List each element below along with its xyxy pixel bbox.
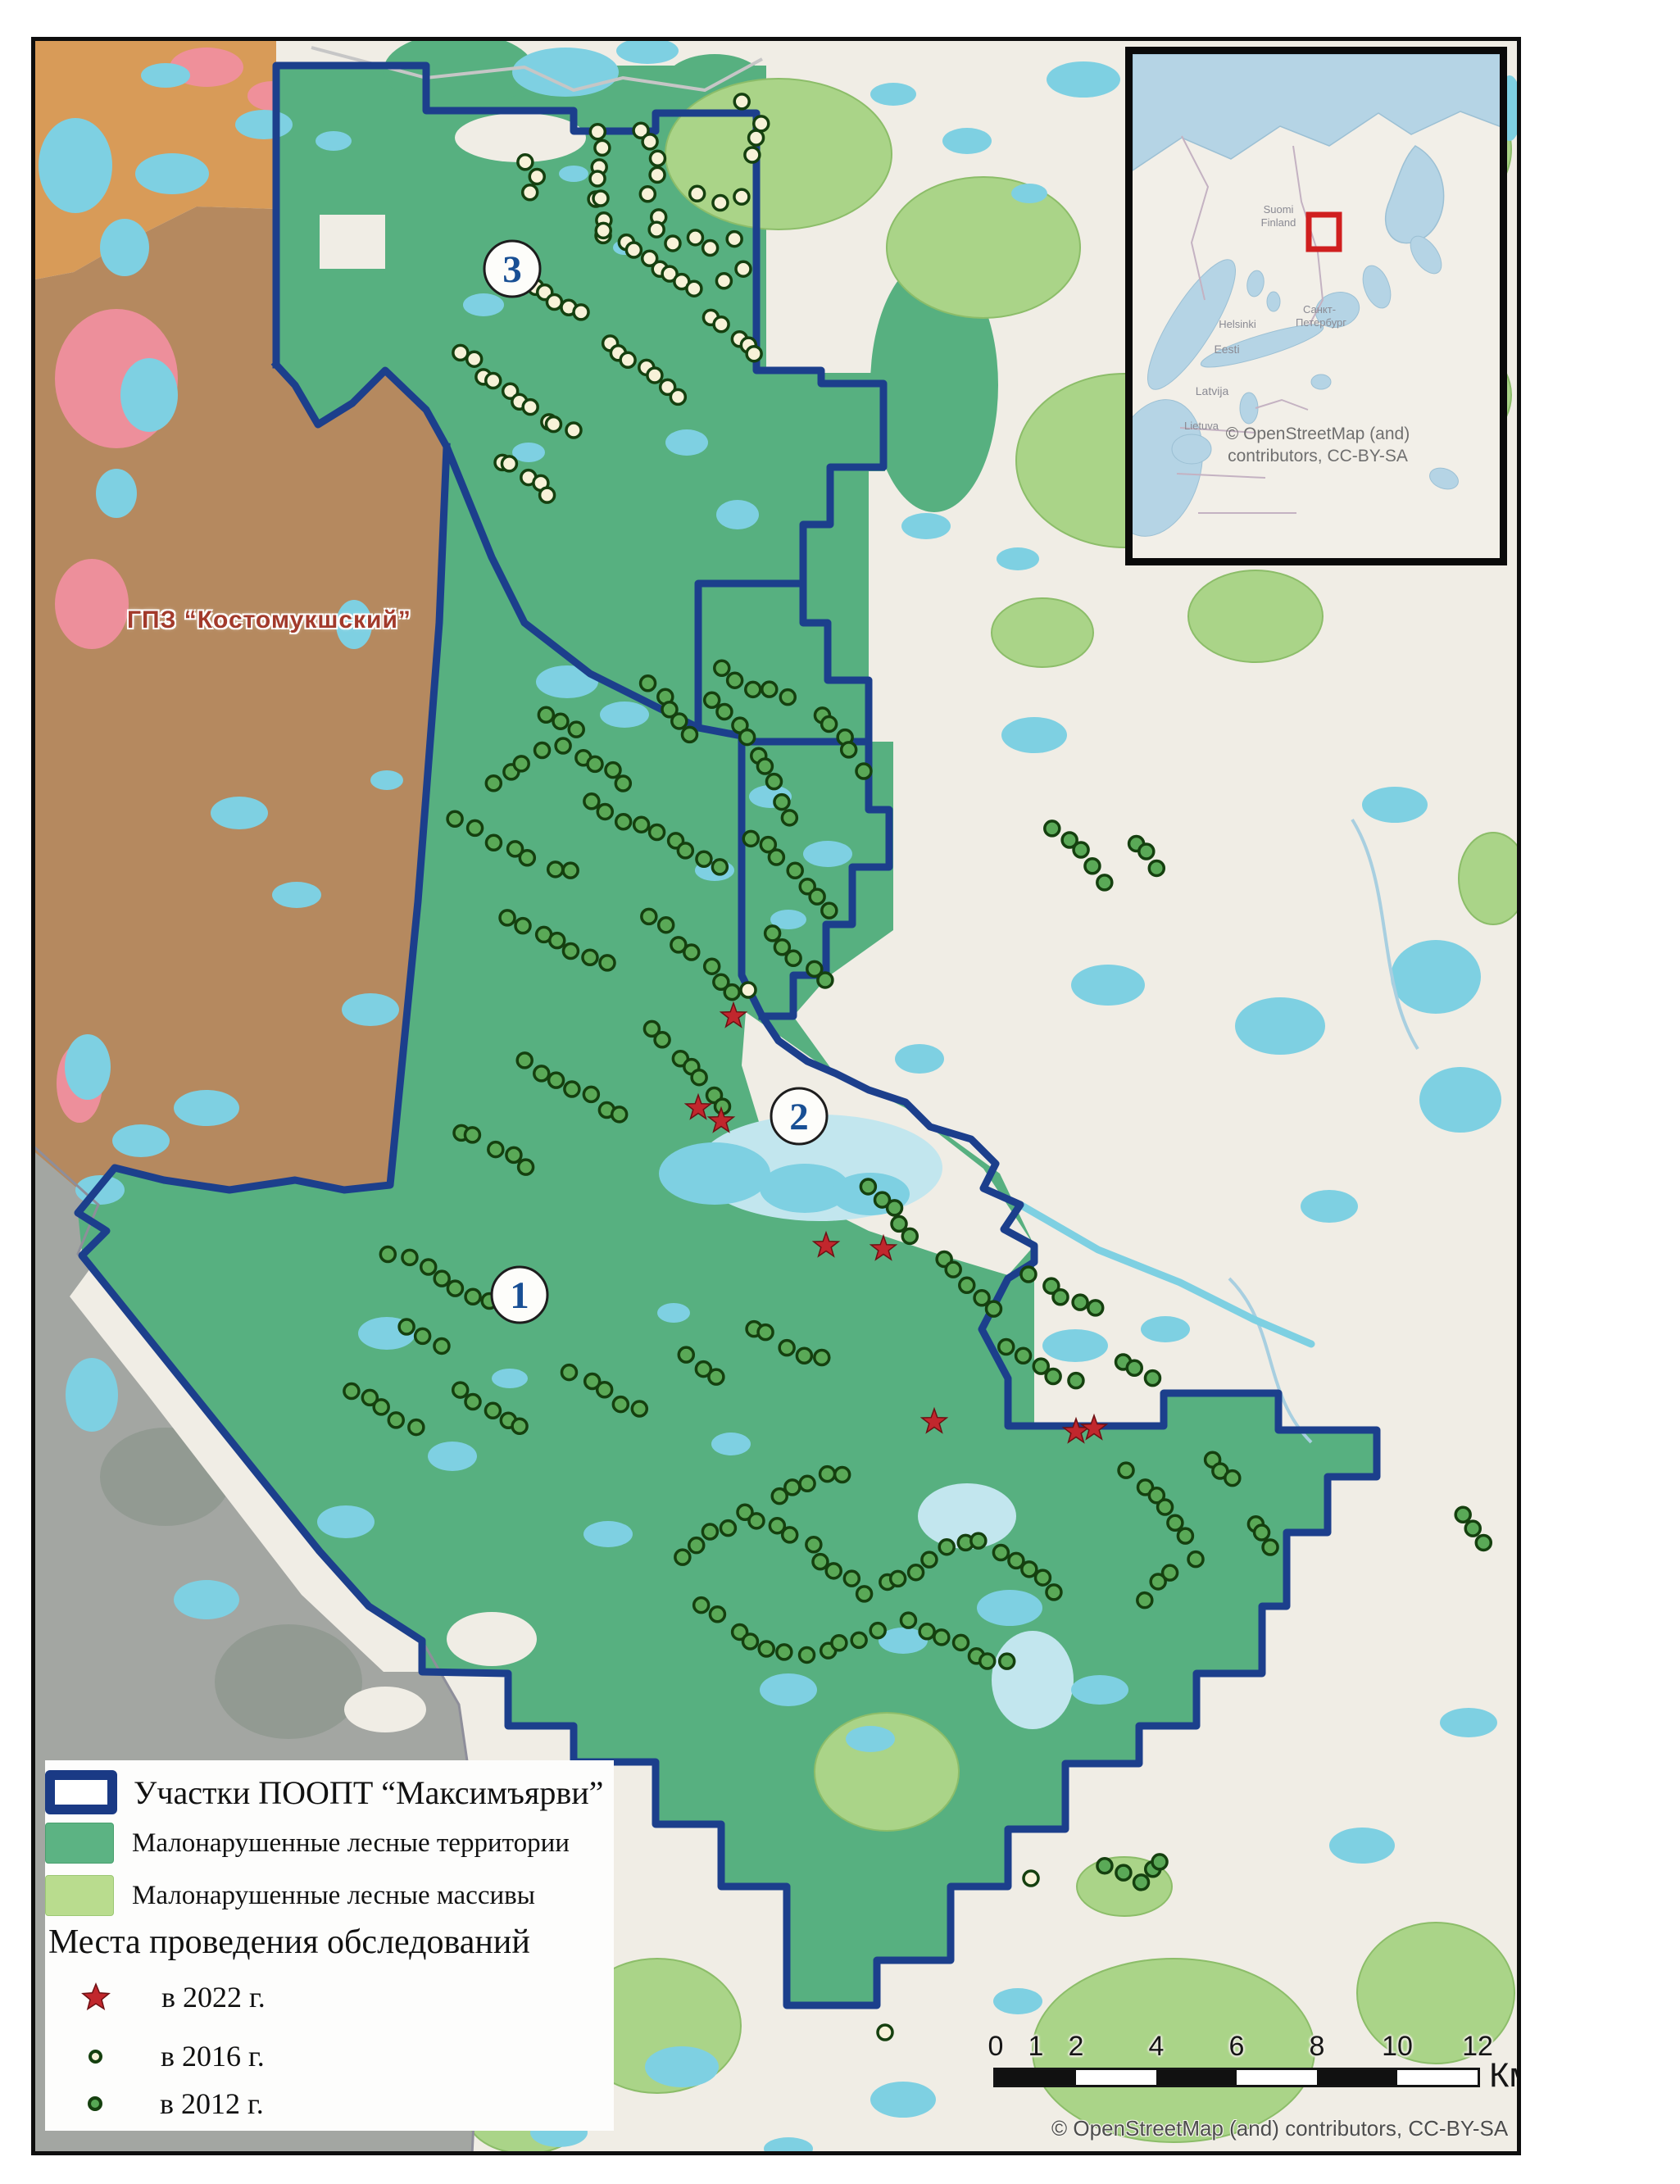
- inset-place-label: Helsinki: [1219, 318, 1256, 330]
- pink-terrain-blob: [55, 559, 129, 649]
- non-forest-blob: [447, 1612, 537, 1666]
- legend-label: Малонарушенные лесные массивы: [132, 1881, 535, 1911]
- scalebar-segment: [1156, 2070, 1237, 2085]
- figure-page: 321 ГПЗ “Костомукшский” SuomiFinlandСанк…: [0, 0, 1680, 2184]
- forest-massif-blob: [1188, 570, 1323, 662]
- legend-item-boundary: Участки ПООПТ “Максимъярви”: [45, 1770, 603, 1814]
- lake: [39, 118, 112, 213]
- scalebar-labels: 0124681012: [993, 2031, 1521, 2064]
- scalebar-tick-label: 2: [1069, 2031, 1084, 2063]
- inset-place-label: Latvija: [1196, 384, 1229, 397]
- lake: [901, 513, 951, 539]
- lake: [846, 1726, 895, 1752]
- legend-label: в 2012 г.: [160, 2086, 264, 2121]
- inset-place-label: Петербург: [1296, 316, 1346, 329]
- lake: [1391, 940, 1481, 1014]
- lake: [711, 1433, 751, 1455]
- svg-text:1: 1: [510, 1274, 529, 1317]
- lake: [600, 702, 649, 728]
- forest-massif-swatch: [45, 1875, 114, 1916]
- lake: [211, 797, 268, 829]
- reserve-label: ГПЗ “Костомукшский”: [127, 606, 411, 634]
- lake: [1235, 997, 1325, 1055]
- lake: [65, 1034, 111, 1100]
- lake: [659, 1142, 770, 1205]
- inset-locator-map: SuomiFinlandСанкт-ПетербургHelsinkiEesti…: [1125, 47, 1507, 565]
- svg-text:2: 2: [789, 1096, 809, 1138]
- lake: [559, 166, 588, 182]
- lake: [1011, 184, 1047, 203]
- lake: [463, 293, 504, 316]
- main-map: 321 ГПЗ “Костомукшский” SuomiFinlandСанк…: [31, 37, 1521, 2155]
- scalebar: [993, 2068, 1480, 2087]
- lake: [316, 131, 352, 151]
- lake: [141, 63, 190, 88]
- legend-label: Участки ПООПТ “Максимъярви”: [134, 1773, 603, 1812]
- lake: [342, 993, 399, 1026]
- lake: [942, 128, 992, 154]
- legend-label: Малонарушенные лесные территории: [132, 1828, 570, 1859]
- scalebar-tick-label: 8: [1310, 2031, 1325, 2063]
- inset-water-body: [1172, 434, 1211, 464]
- lake: [235, 110, 293, 139]
- lake: [1071, 1675, 1128, 1705]
- lake: [96, 469, 137, 518]
- legend-label: в 2022 г.: [161, 1980, 266, 2014]
- legend-item-2012: в 2012 г.: [88, 2086, 264, 2121]
- plot-marker-3: 3: [484, 241, 540, 297]
- scalebar-segment: [1397, 2070, 1478, 2085]
- lake: [174, 1580, 239, 1619]
- legend-item-forest-territory: Малонарушенные лесные территории: [45, 1823, 570, 1864]
- lake: [1440, 1708, 1497, 1737]
- lake: [716, 500, 759, 529]
- inset-place-label: Finland: [1261, 216, 1296, 229]
- gray-terrain-blob: [215, 1624, 362, 1739]
- scalebar-tick-label: 6: [1229, 2031, 1245, 2063]
- inset-water-body: [1240, 393, 1258, 424]
- survey-heading: Места проведения обследований: [48, 1923, 530, 1962]
- lake: [870, 83, 916, 106]
- lake: [870, 2082, 936, 2118]
- lake: [492, 1369, 528, 1388]
- legend-item-forest-massif: Малонарушенные лесные массивы: [45, 1875, 535, 1916]
- svg-text:3: 3: [502, 248, 522, 291]
- lake: [993, 1988, 1042, 2014]
- scalebar-tick-label: 1: [1028, 2031, 1044, 2063]
- non-forest-area: [320, 215, 385, 269]
- scalebar-segment: [1237, 2070, 1317, 2085]
- inset-place-label: Санкт-: [1303, 303, 1336, 316]
- lake: [100, 219, 149, 276]
- inset-place-label: Lietuva: [1184, 420, 1219, 432]
- inset-attribution: © OpenStreetMap (and): [1226, 425, 1410, 443]
- lake: [370, 770, 403, 790]
- lake: [512, 443, 545, 462]
- scalebar-tick-label: 4: [1149, 2031, 1165, 2063]
- plot-marker-1: 1: [492, 1267, 547, 1323]
- star-2022-icon: [79, 1981, 112, 2014]
- lake: [760, 1673, 817, 1706]
- lake: [1042, 1329, 1108, 1362]
- inset-place-label: Suomi: [1264, 203, 1294, 216]
- forest-territory-swatch: [45, 1823, 114, 1864]
- lake: [657, 1303, 690, 1323]
- inset-map-canvas: SuomiFinlandСанкт-ПетербургHelsinkiEesti…: [1133, 54, 1500, 558]
- lake: [1047, 61, 1120, 98]
- lake: [174, 1090, 239, 1126]
- lake: [997, 547, 1039, 570]
- map-attribution: © OpenStreetMap (and) contributors, CC-B…: [1051, 2116, 1508, 2141]
- legend-label: в 2016 г.: [161, 2039, 265, 2073]
- lake: [120, 358, 178, 432]
- legend: Участки ПООПТ “Максимъярви” Малонарушенн…: [45, 1760, 614, 2131]
- forest-massif-blob: [887, 177, 1080, 318]
- lake: [428, 1442, 477, 1471]
- lake: [1329, 1828, 1395, 1864]
- scalebar-segment: [1317, 2070, 1397, 2085]
- lake: [66, 1358, 118, 1432]
- lake: [583, 1521, 633, 1547]
- lake: [512, 48, 619, 97]
- scalebar-tick-label: 10: [1382, 2031, 1413, 2063]
- scalebar-segment: [1076, 2070, 1156, 2085]
- lake: [1301, 1190, 1358, 1223]
- legend-item-2022: в 2022 г.: [79, 1980, 266, 2014]
- lake: [1141, 1316, 1190, 1342]
- scalebar-segment: [996, 2070, 1076, 2085]
- lake: [317, 1505, 375, 1538]
- circle-2016-icon: [89, 2050, 102, 2064]
- lake: [1001, 717, 1067, 753]
- inset-place-label: Eesti: [1214, 343, 1239, 356]
- inset-attribution: contributors, CC-BY-SA: [1228, 447, 1408, 465]
- scalebar-tick-label: 0: [988, 2031, 1004, 2063]
- boundary-swatch: [45, 1770, 117, 1814]
- lake: [977, 1590, 1042, 1626]
- lake: [1071, 965, 1145, 1006]
- inset-water-body: [1311, 375, 1331, 389]
- lake: [1419, 1067, 1501, 1133]
- lake: [272, 882, 321, 908]
- forest-massif-blob: [992, 598, 1093, 667]
- lake: [1362, 787, 1428, 823]
- plot-marker-2: 2: [771, 1088, 827, 1144]
- lake: [645, 2046, 719, 2087]
- lake: [135, 153, 209, 194]
- scalebar-unit: Км: [1489, 2055, 1521, 2095]
- non-forest-blob: [344, 1687, 426, 1732]
- wetland-wash: [992, 1631, 1074, 1729]
- forest-massif-blob: [665, 79, 892, 229]
- circle-2012-icon: [88, 2096, 102, 2111]
- lake: [803, 841, 852, 867]
- legend-item-2016: в 2016 г.: [89, 2039, 265, 2073]
- lake: [895, 1044, 944, 1074]
- lake: [112, 1124, 170, 1157]
- lake: [665, 429, 708, 456]
- inset-water-body: [1267, 292, 1280, 311]
